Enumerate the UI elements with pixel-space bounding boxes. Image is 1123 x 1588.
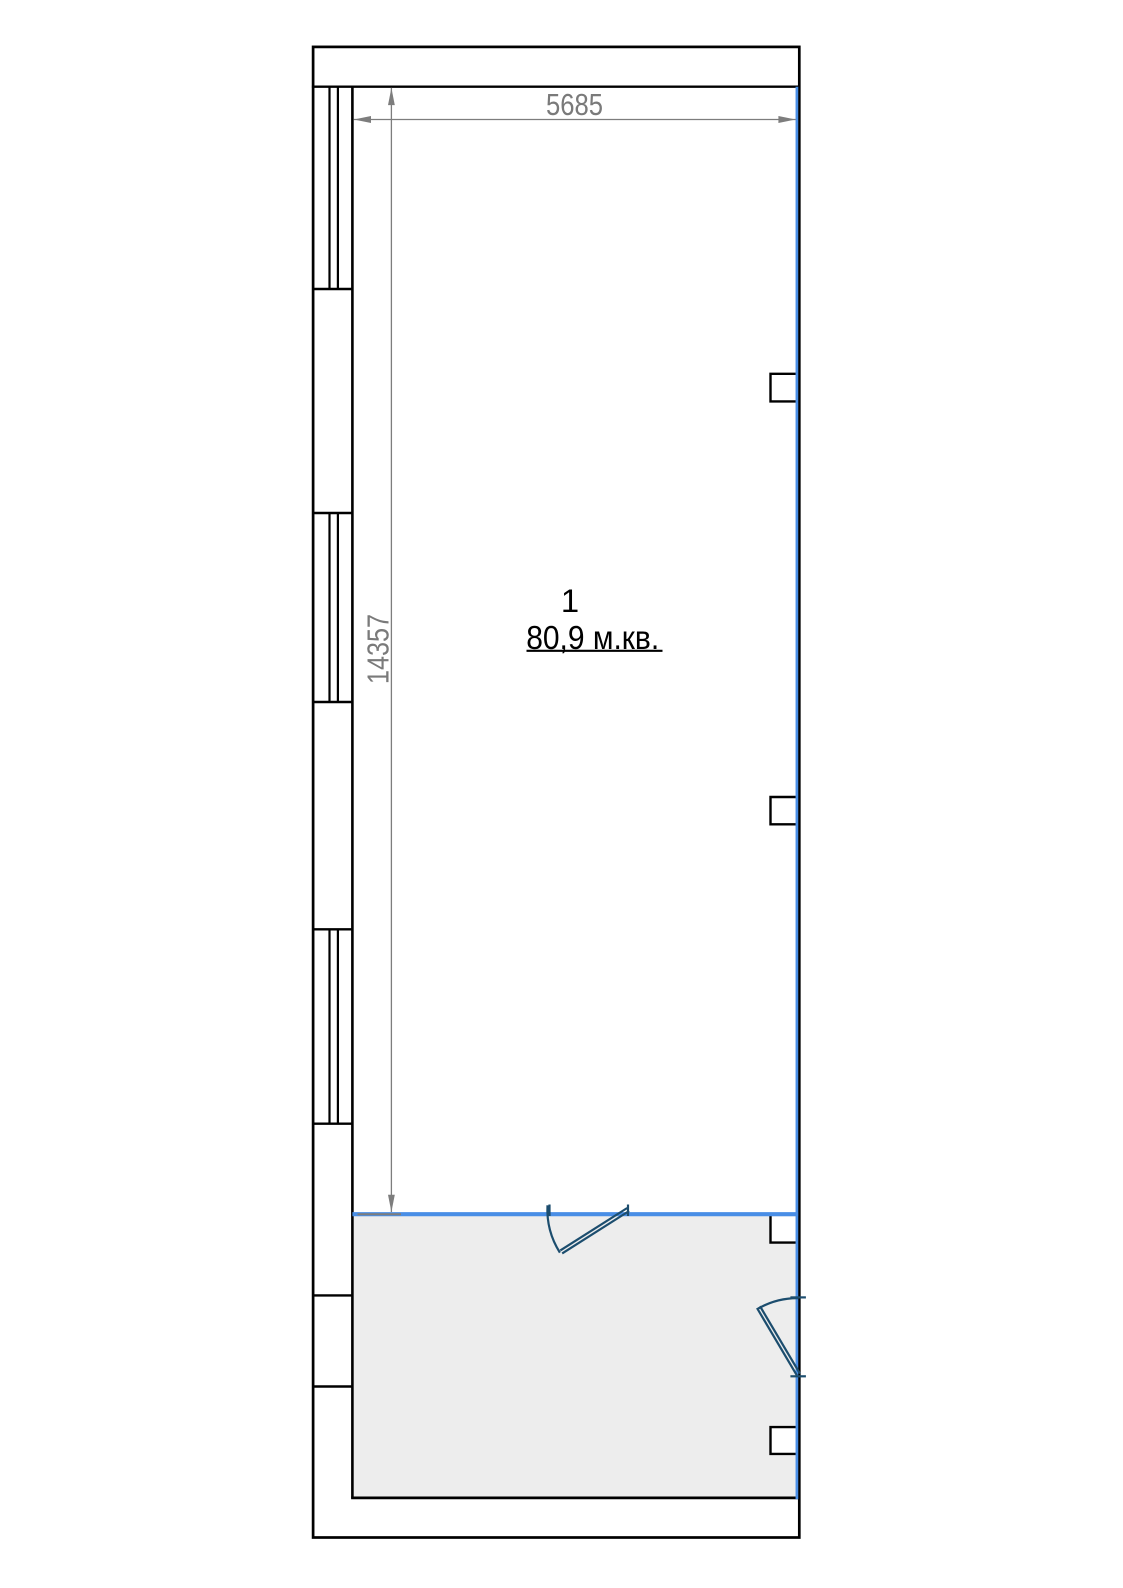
svg-text:5685: 5685	[546, 88, 603, 122]
svg-text:1: 1	[561, 582, 579, 619]
svg-text:14357: 14357	[361, 614, 395, 684]
